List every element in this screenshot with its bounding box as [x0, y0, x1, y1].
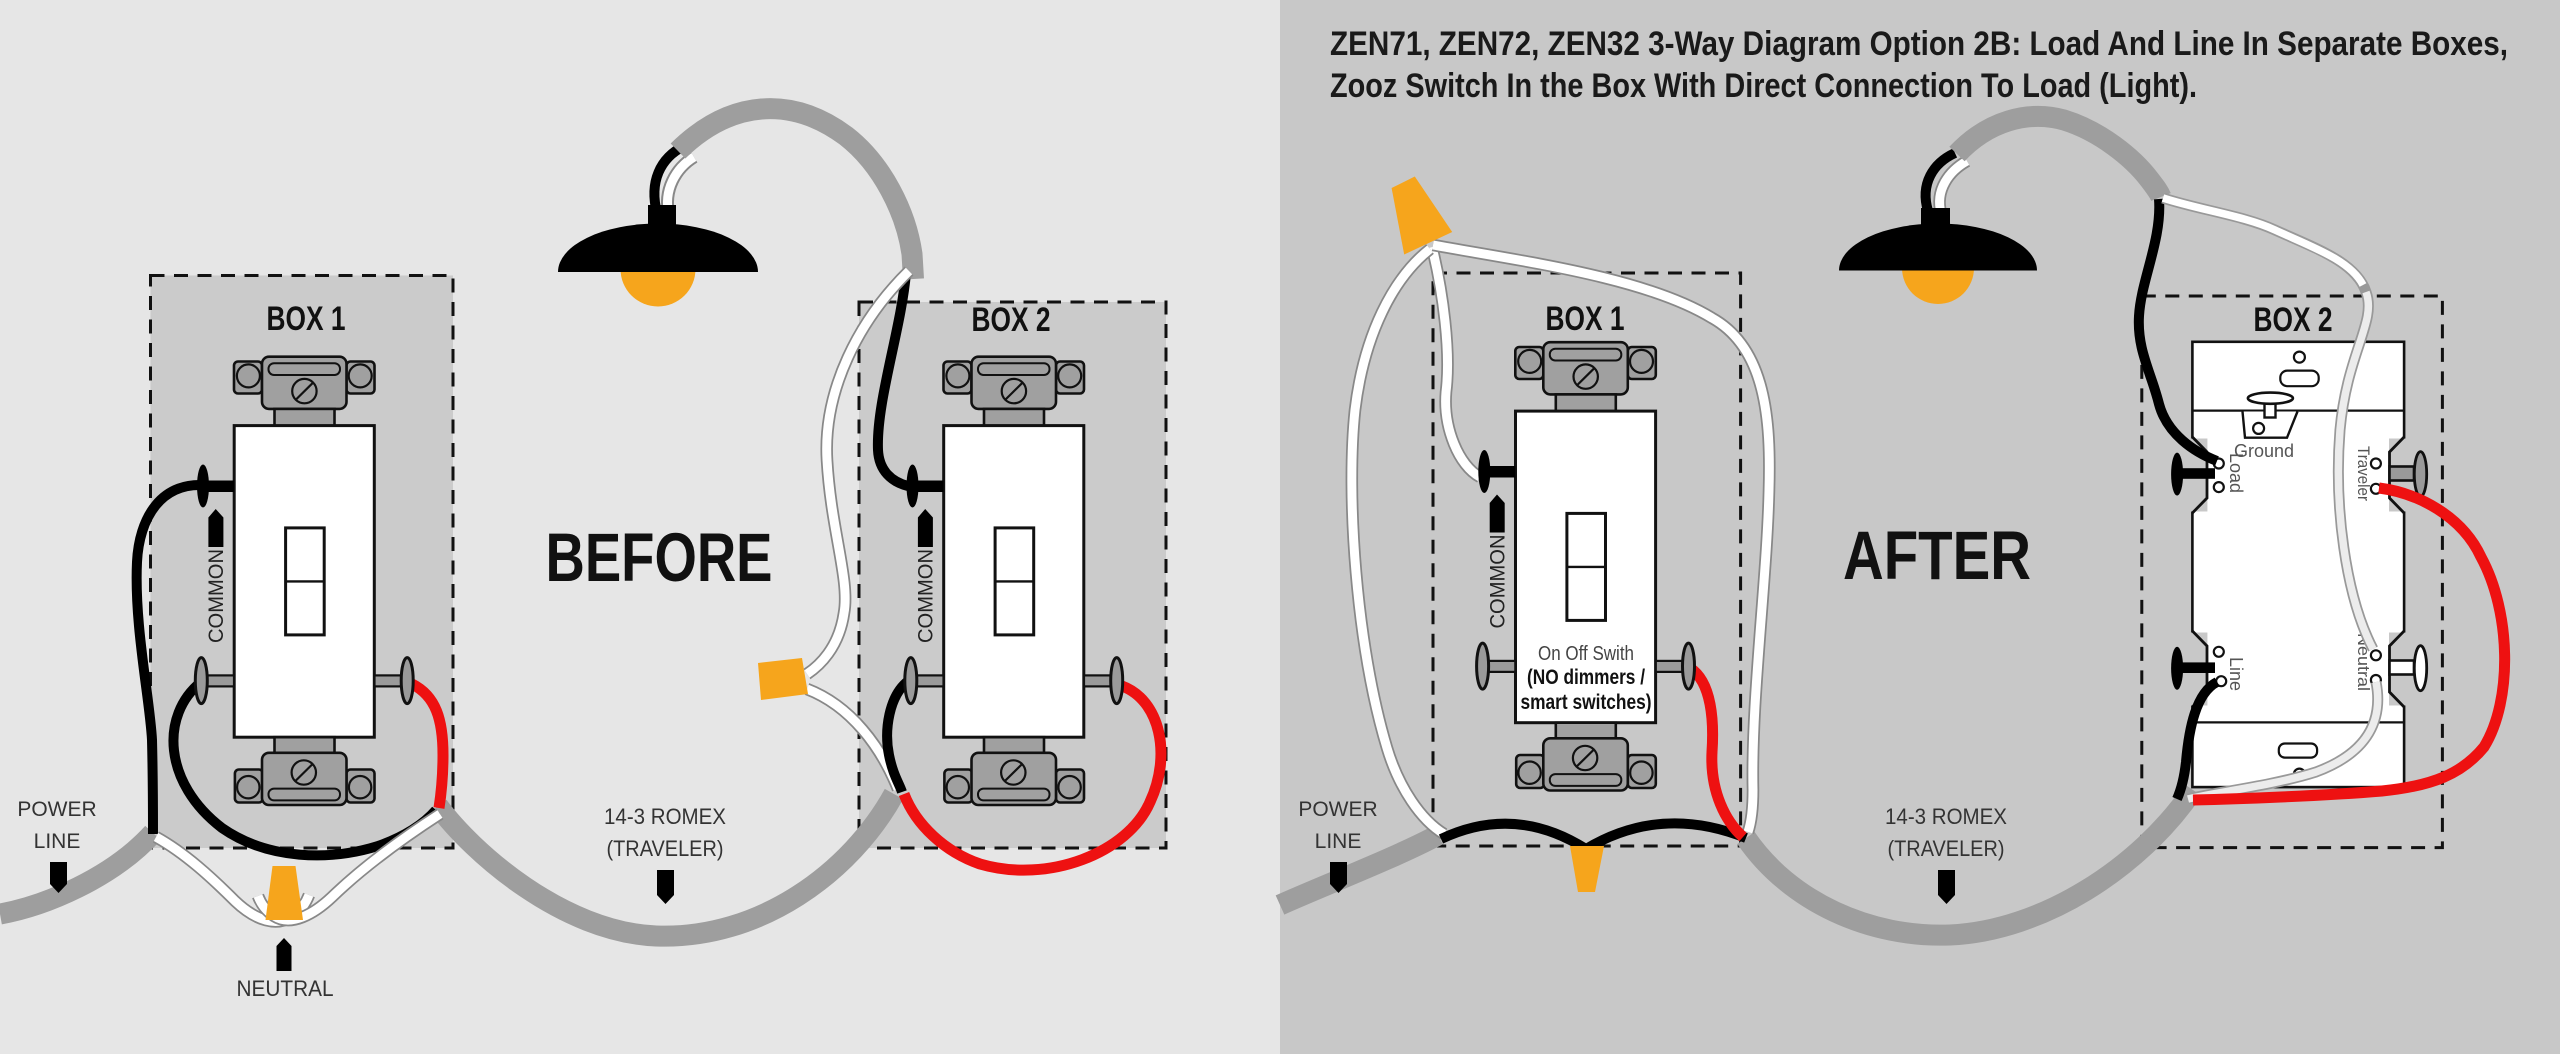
svg-text:POWER: POWER [17, 798, 96, 821]
svg-text:BOX 2: BOX 2 [972, 301, 1051, 339]
svg-text:(TRAVELER): (TRAVELER) [1888, 836, 2005, 861]
svg-text:BOX 1: BOX 1 [267, 300, 346, 338]
svg-text:On Off Swith: On Off Swith [1538, 643, 1634, 665]
svg-text:POWER: POWER [1298, 798, 1377, 821]
svg-text:LINE: LINE [34, 830, 81, 853]
svg-text:Load: Load [2226, 453, 2246, 493]
svg-text:NEUTRAL: NEUTRAL [237, 976, 334, 1001]
svg-text:BEFORE: BEFORE [546, 519, 773, 596]
svg-text:Traveler: Traveler [2354, 446, 2373, 501]
svg-text:14-3 ROMEX: 14-3 ROMEX [1885, 804, 2007, 829]
svg-text:Zooz Switch In the Box With Di: Zooz Switch In the Box With Direct Conne… [1330, 67, 2197, 105]
svg-text:(TRAVELER): (TRAVELER) [607, 836, 724, 861]
svg-text:AFTER: AFTER [1843, 517, 2031, 594]
svg-text:smart switches): smart switches) [1521, 691, 1652, 714]
svg-text:Line: Line [2226, 657, 2246, 691]
svg-text:(NO dimmers /: (NO dimmers / [1527, 666, 1645, 689]
svg-text:14-3 ROMEX: 14-3 ROMEX [604, 804, 726, 829]
svg-text:BOX 1: BOX 1 [1546, 300, 1625, 338]
svg-text:ZEN71, ZEN72, ZEN32 3-Way Diag: ZEN71, ZEN72, ZEN32 3-Way Diagram Option… [1330, 25, 2508, 63]
svg-text:BOX 2: BOX 2 [2254, 301, 2333, 339]
svg-text:LINE: LINE [1315, 830, 1362, 853]
